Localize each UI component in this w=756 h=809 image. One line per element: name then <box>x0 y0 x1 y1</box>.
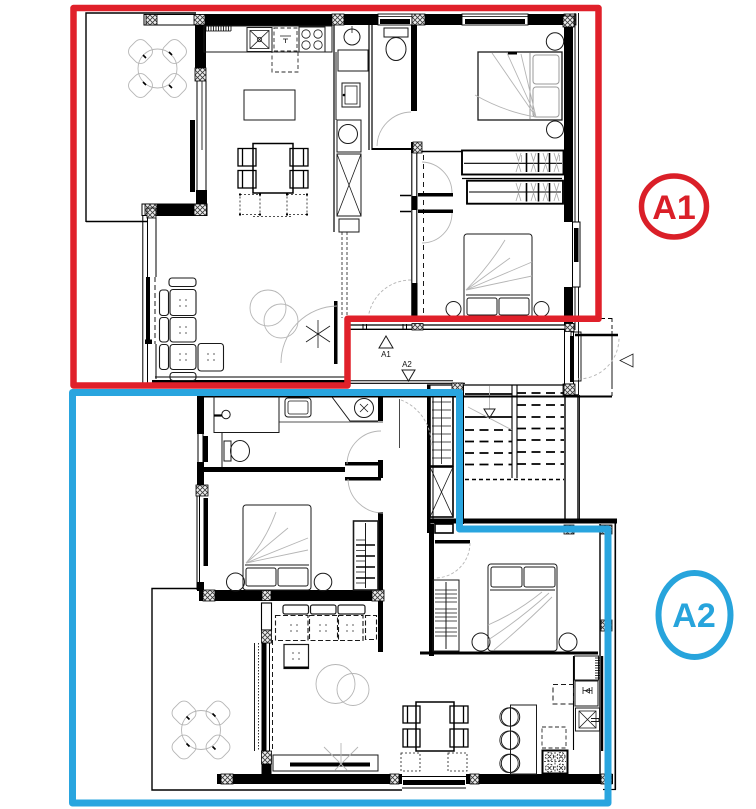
svg-text:A1: A1 <box>381 350 391 359</box>
svg-text:A1: A1 <box>652 189 695 227</box>
svg-text:A2: A2 <box>672 597 715 635</box>
svg-text:A2: A2 <box>402 360 412 369</box>
